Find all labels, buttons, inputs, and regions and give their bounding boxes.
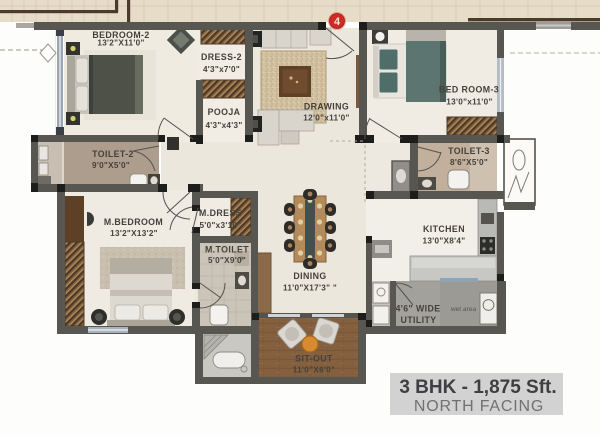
svg-text:M.TOILET: M.TOILET [205, 245, 249, 255]
svg-text:4'6" WIDE: 4'6" WIDE [395, 304, 440, 314]
svg-text:M.DRESS: M.DRESS [199, 208, 242, 218]
svg-text:M.BEDROOM: M.BEDROOM [104, 217, 163, 227]
svg-text:NORTH FACING: NORTH FACING [414, 398, 544, 415]
svg-text:3 BHK - 1,875 Sft.: 3 BHK - 1,875 Sft. [399, 377, 556, 398]
svg-text:TOILET-2: TOILET-2 [92, 149, 134, 159]
svg-text:13'0"X8'4": 13'0"X8'4" [423, 237, 466, 246]
svg-text:12'0"x11'0": 12'0"x11'0" [303, 114, 349, 123]
svg-text:POOJA: POOJA [208, 107, 241, 117]
svg-text:DRESS-2: DRESS-2 [201, 52, 242, 62]
svg-text:SIT-OUT: SIT-OUT [295, 354, 333, 364]
svg-text:TOILET-3: TOILET-3 [448, 146, 490, 156]
svg-text:4'3"x4'3": 4'3"x4'3" [205, 121, 242, 130]
svg-text:5'0"x3'10": 5'0"x3'10" [200, 221, 242, 230]
svg-text:UTILITY: UTILITY [400, 315, 436, 325]
svg-text:4'3"x7'0": 4'3"x7'0" [203, 65, 240, 74]
svg-text:13'2"X11'0": 13'2"X11'0" [97, 39, 144, 48]
svg-text:11'0"X17'3" ": 11'0"X17'3" " [283, 284, 337, 293]
svg-text:KITCHEN: KITCHEN [423, 224, 465, 234]
svg-text:8'6"X5'0": 8'6"X5'0" [450, 158, 488, 167]
svg-text:4: 4 [334, 16, 341, 28]
svg-text:5'0"X9'0": 5'0"X9'0" [208, 256, 246, 265]
svg-text:9'0"X5'0": 9'0"X5'0" [92, 161, 130, 170]
svg-text:DINING: DINING [293, 271, 326, 281]
svg-text:13'0"x11'0": 13'0"x11'0" [446, 98, 492, 107]
svg-text:DRAWING: DRAWING [304, 102, 349, 112]
svg-text:BED ROOM-3: BED ROOM-3 [439, 85, 499, 95]
svg-text:13'2"X13'2": 13'2"X13'2" [110, 229, 158, 238]
svg-text:wet area: wet area [450, 306, 477, 313]
svg-text:11'0"X6'0": 11'0"X6'0" [293, 366, 335, 375]
